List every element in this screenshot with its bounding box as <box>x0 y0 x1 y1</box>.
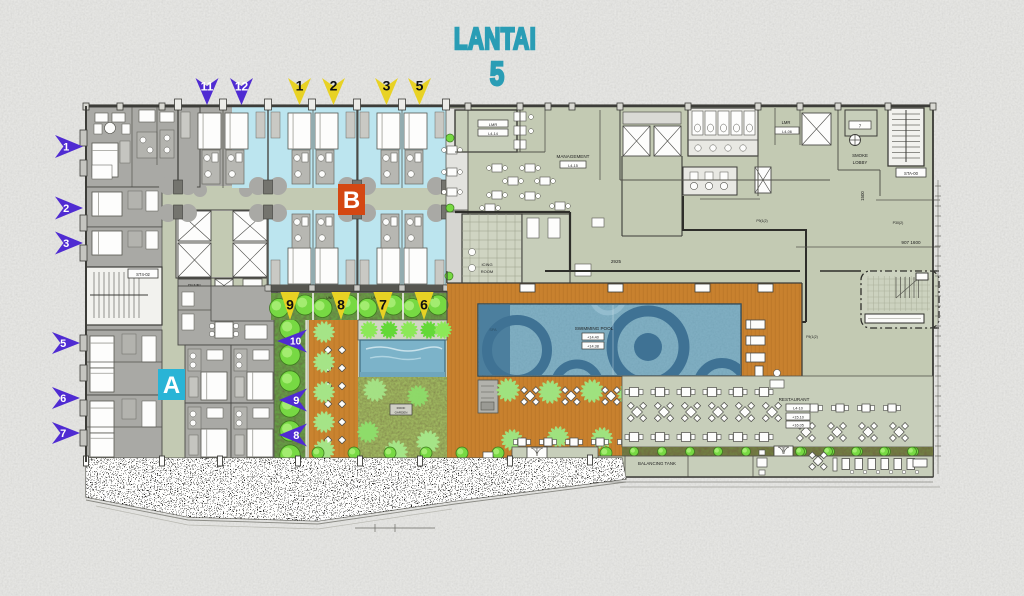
svg-text:907 1600: 907 1600 <box>901 240 921 245</box>
svg-text:5: 5 <box>60 338 66 350</box>
svg-text:7: 7 <box>379 296 387 312</box>
svg-text:L4-10: L4-10 <box>793 407 803 411</box>
svg-text:+16.05: +16.05 <box>792 424 804 428</box>
svg-text:ROOF: ROOF <box>397 406 406 410</box>
svg-text:6: 6 <box>420 296 428 312</box>
svg-text:3: 3 <box>63 238 69 250</box>
svg-text:L4-15: L4-15 <box>568 164 578 168</box>
svg-text:ROOM: ROOM <box>481 269 493 274</box>
svg-text:MANAGEMENT: MANAGEMENT <box>557 154 590 159</box>
svg-text:9: 9 <box>293 395 299 407</box>
svg-text:F9(1(2): F9(1(2) <box>806 335 818 339</box>
svg-text:1: 1 <box>296 78 304 94</box>
svg-text:SMOKE: SMOKE <box>852 153 868 158</box>
svg-text:3: 3 <box>383 78 391 94</box>
svg-text:7: 7 <box>60 428 66 440</box>
svg-text:BALANCING TANK: BALANCING TANK <box>638 461 676 466</box>
svg-text:+14.38: +14.38 <box>587 345 599 349</box>
svg-text:2: 2 <box>330 78 338 94</box>
svg-text:6: 6 <box>60 393 66 405</box>
svg-text:2: 2 <box>63 203 69 215</box>
svg-text:ST4-02: ST4-02 <box>136 272 150 277</box>
svg-text:LOBBY: LOBBY <box>853 160 868 165</box>
svg-text:SPA: SPA <box>489 328 497 332</box>
svg-text:11: 11 <box>201 80 214 94</box>
svg-text:LANTAI: LANTAI <box>454 21 536 55</box>
svg-text:P9(1(2): P9(1(2) <box>756 219 767 223</box>
svg-text:LMR: LMR <box>489 122 498 127</box>
svg-text:5: 5 <box>490 56 504 93</box>
svg-text:L4-06: L4-06 <box>782 130 792 134</box>
svg-text:10: 10 <box>290 337 302 348</box>
svg-text:P30(2): P30(2) <box>893 221 904 225</box>
svg-text:RESTAURANT: RESTAURANT <box>779 397 810 402</box>
svg-text:L4-14: L4-14 <box>488 132 498 136</box>
svg-text:GARDEN: GARDEN <box>395 411 408 415</box>
svg-text:ICING: ICING <box>481 262 492 267</box>
svg-text:12: 12 <box>235 80 249 94</box>
svg-text:1: 1 <box>63 141 69 153</box>
svg-text:+14.40: +14.40 <box>587 336 599 340</box>
svg-text:STA-00: STA-00 <box>904 171 919 176</box>
svg-text:LMR: LMR <box>782 120 791 125</box>
svg-text:1500: 1500 <box>860 191 865 201</box>
svg-text:2925: 2925 <box>611 259 622 264</box>
svg-text:+15.10: +15.10 <box>792 416 804 420</box>
svg-text:8: 8 <box>293 430 299 442</box>
svg-text:8: 8 <box>337 296 345 312</box>
svg-text:SWIMMING POOL: SWIMMING POOL <box>575 326 614 331</box>
svg-text:5: 5 <box>416 78 424 94</box>
svg-text:B: B <box>343 187 360 214</box>
svg-text:A: A <box>163 372 180 399</box>
svg-text:9: 9 <box>286 296 294 312</box>
